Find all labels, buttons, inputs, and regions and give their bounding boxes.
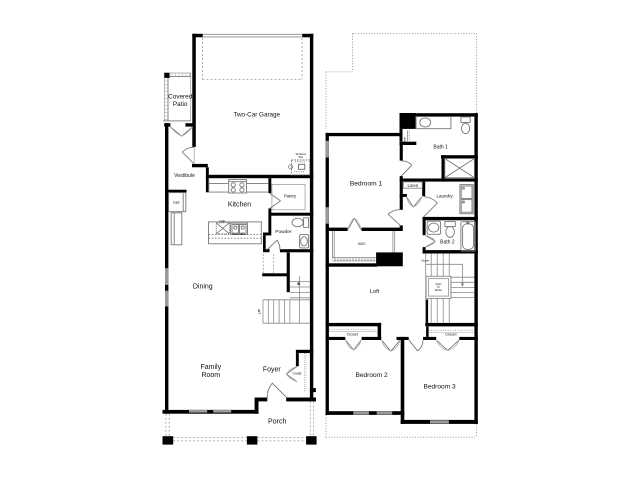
svg-text:Closet: Closet <box>403 137 406 144</box>
svg-text:Coats: Coats <box>292 371 301 375</box>
svg-text:Down: Down <box>421 259 429 263</box>
svg-text:REF: REF <box>173 201 179 205</box>
svg-text:Powder: Powder <box>275 229 292 235</box>
svg-text:WH: WH <box>298 155 303 159</box>
svg-text:DW: DW <box>220 220 225 224</box>
svg-text:Bedroom 3: Bedroom 3 <box>423 383 456 390</box>
svg-text:Loft: Loft <box>370 289 380 295</box>
svg-text:36x22 SINK: 36x22 SINK <box>232 233 245 236</box>
svg-text:Vestibule: Vestibule <box>174 173 195 179</box>
svg-text:Dining: Dining <box>193 283 213 290</box>
svg-text:Two-Car Garage: Two-Car Garage <box>234 112 281 119</box>
svg-text:Foyer: Foyer <box>263 366 282 373</box>
svg-text:Patio: Patio <box>173 101 188 108</box>
svg-text:Bedroom 2: Bedroom 2 <box>355 372 388 379</box>
svg-text:Family: Family <box>200 364 221 371</box>
svg-text:Room: Room <box>201 372 220 379</box>
svg-text:Below: Below <box>435 288 442 292</box>
svg-text:Closet: Closet <box>445 331 457 336</box>
svg-text:Bath 2: Bath 2 <box>440 240 455 246</box>
svg-text:UP: UP <box>258 308 262 314</box>
svg-text:Porch: Porch <box>268 418 286 425</box>
svg-text:WIC: WIC <box>358 241 366 246</box>
svg-text:Pantry: Pantry <box>284 194 297 199</box>
svg-text:Kitchen: Kitchen <box>228 202 251 209</box>
svg-text:Bath 1: Bath 1 <box>433 144 448 150</box>
svg-text:Closet: Closet <box>347 331 359 336</box>
svg-text:Laundry: Laundry <box>436 193 453 198</box>
svg-text:Bedroom 1: Bedroom 1 <box>350 181 383 188</box>
svg-text:Covered: Covered <box>168 93 193 100</box>
svg-text:Linen: Linen <box>408 183 419 188</box>
